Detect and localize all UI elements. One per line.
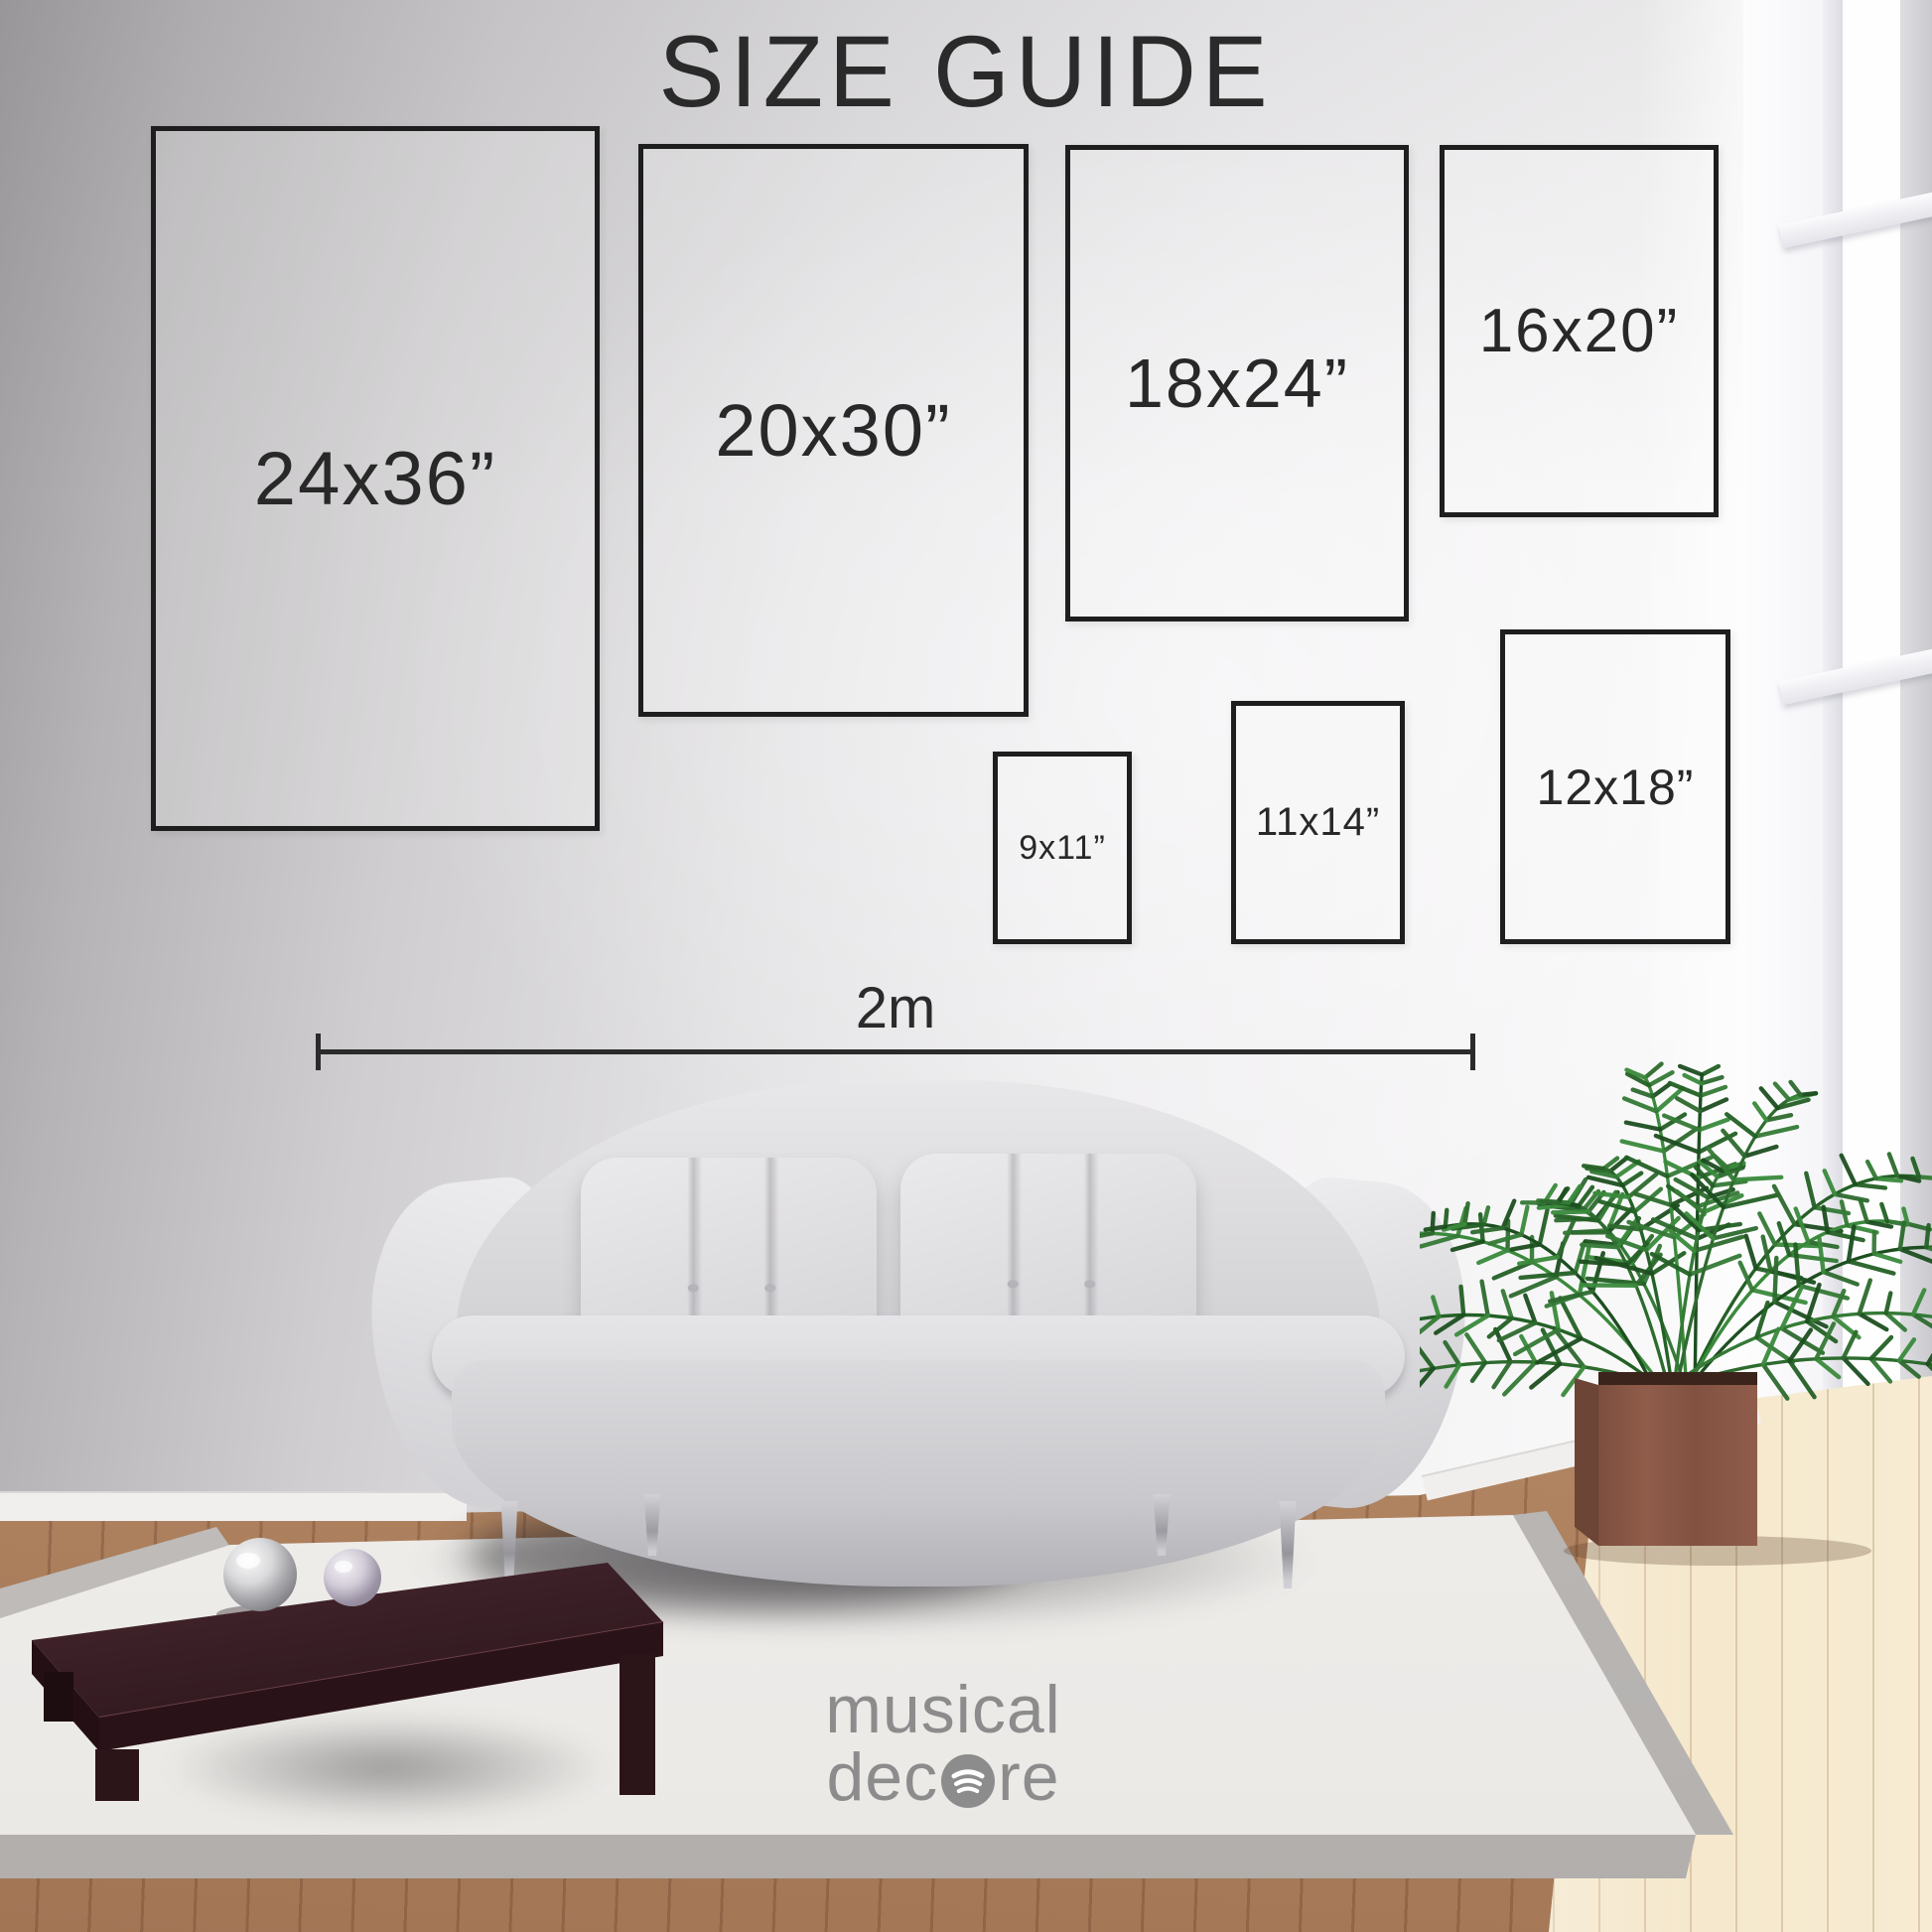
plant [1420,993,1932,1569]
sphere-highlight [236,1553,260,1569]
size-box-24x36: 24x36” [151,126,600,831]
size-box-12x18: 12x18” [1500,629,1730,944]
spotify-arcs-icon [941,1754,995,1808]
scale-bar-line [318,1049,1473,1054]
watermark-line2: dec re [755,1741,1132,1813]
size-box-16x20: 16x20” [1440,145,1719,517]
size-box-11x14: 11x14” [1231,701,1405,944]
scale-bar-tick-left [316,1034,321,1070]
table-leg-back [44,1672,73,1722]
watermark: musical dec re [755,1678,1132,1813]
table-leg-right [620,1654,655,1795]
scale-bar-label: 2m [796,975,995,1041]
table-leg-front-left [95,1749,139,1801]
size-label: 12x18” [1537,759,1695,816]
size-label: 20x30” [715,388,951,473]
page-title: SIZE GUIDE [29,14,1903,130]
glass-sphere-small [324,1549,381,1606]
coffee-table [0,1529,715,1932]
sofa [382,1072,1454,1608]
glass-sphere-large [223,1538,297,1611]
size-box-9x11: 9x11” [993,752,1132,944]
size-box-20x30: 20x30” [638,144,1029,717]
size-label: 16x20” [1479,296,1680,366]
sphere-highlight [335,1561,352,1573]
size-label: 9x11” [1019,829,1106,868]
planter [1575,1372,1757,1546]
size-label: 24x36” [254,436,496,522]
size-guide-scene: SIZE GUIDE 24x36” 20x30” 18x24” 16x20” 9… [0,0,1932,1932]
watermark-line2-prefix: dec [826,1741,938,1813]
watermark-line1: musical [755,1678,1132,1741]
watermark-line2-suffix: re [998,1741,1059,1813]
size-box-18x24: 18x24” [1065,145,1409,621]
size-label: 11x14” [1256,800,1380,845]
sofa-leg-front-right [1278,1501,1298,1588]
size-label: 18x24” [1125,344,1349,423]
plant-fronds [1420,1064,1932,1399]
